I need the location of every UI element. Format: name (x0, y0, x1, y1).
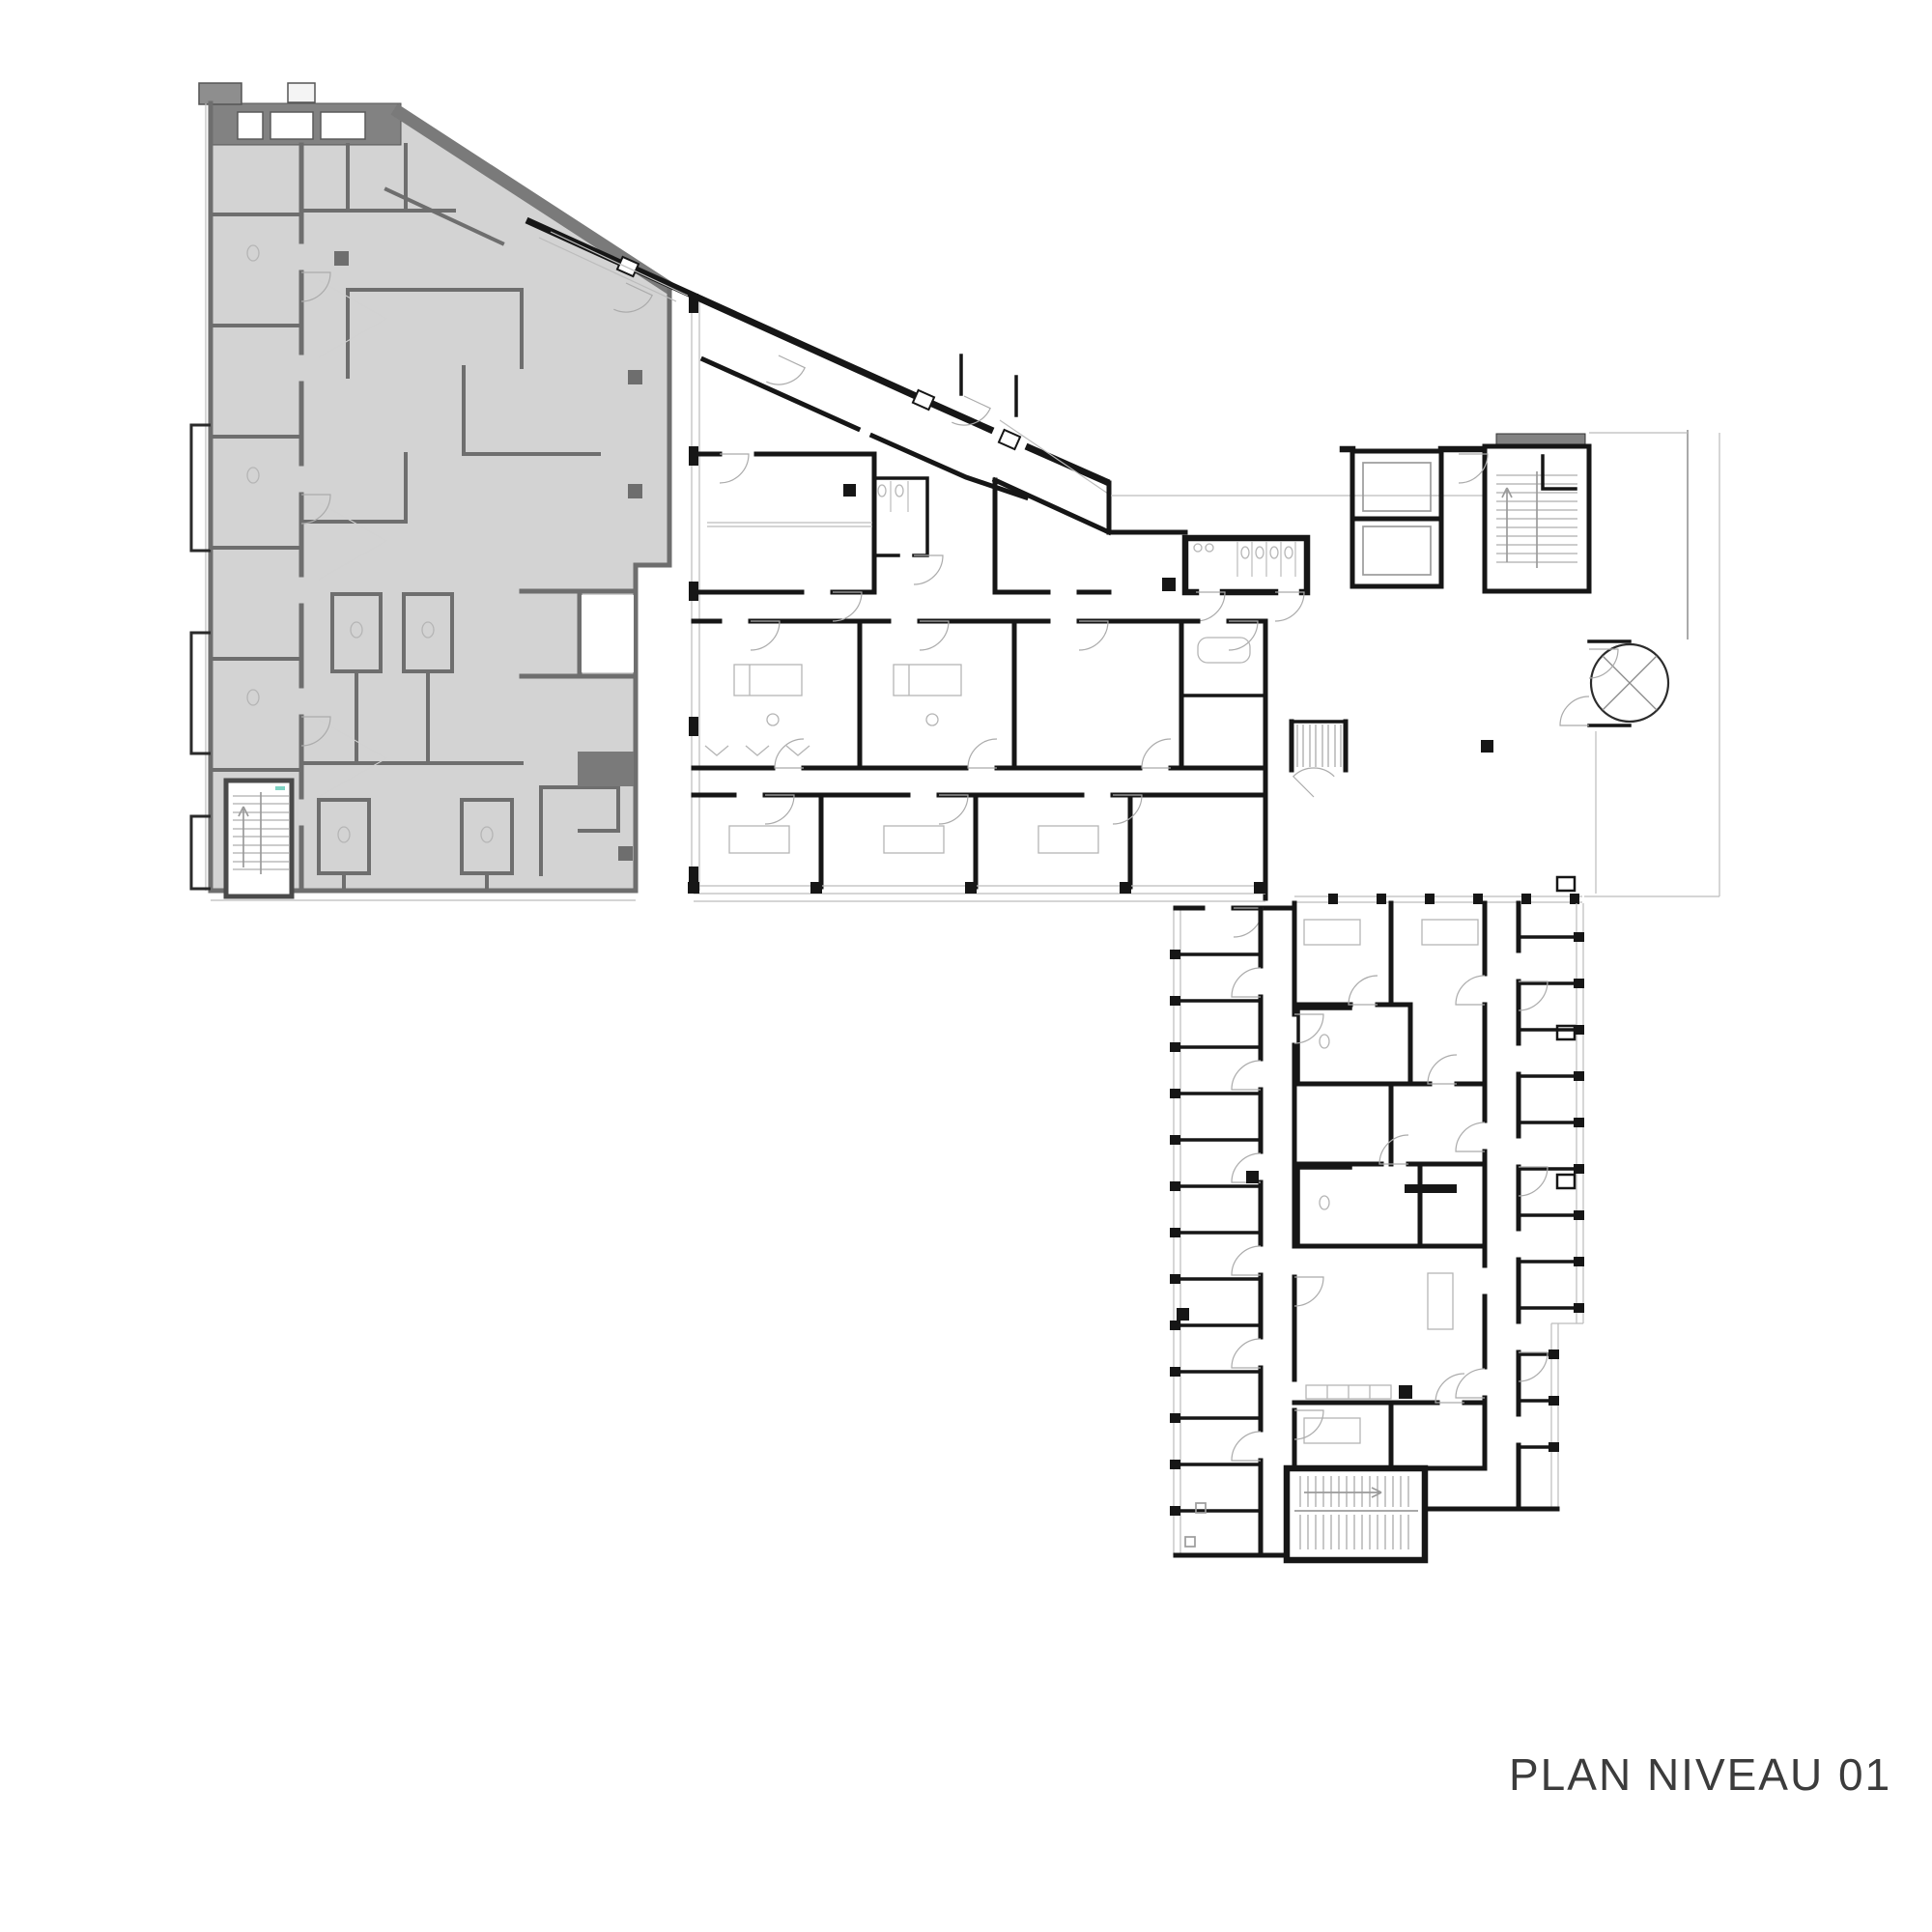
plan-title: PLAN NIVEAU 01 (1509, 1749, 1891, 1800)
stair-northwest (226, 781, 292, 896)
lower-wing (1170, 877, 1584, 1560)
east-facade-piers (1548, 877, 1584, 1452)
middle-treatment-block (1294, 903, 1485, 1468)
floor-plan-page: PLAN NIVEAU 01 (0, 0, 1932, 1932)
stair-south (1287, 1468, 1425, 1560)
roof-access (199, 83, 241, 104)
floor-plan-drawing: PLAN NIVEAU 01 (0, 0, 1932, 1932)
highlighted-west-block (191, 83, 672, 900)
toilet-room-row1 (874, 478, 943, 584)
lobby (1111, 430, 1719, 896)
elevator-bank (1352, 451, 1441, 586)
stair-junction (1292, 722, 1346, 797)
stair-northeast (1459, 434, 1589, 591)
toilet-block (1185, 538, 1307, 621)
